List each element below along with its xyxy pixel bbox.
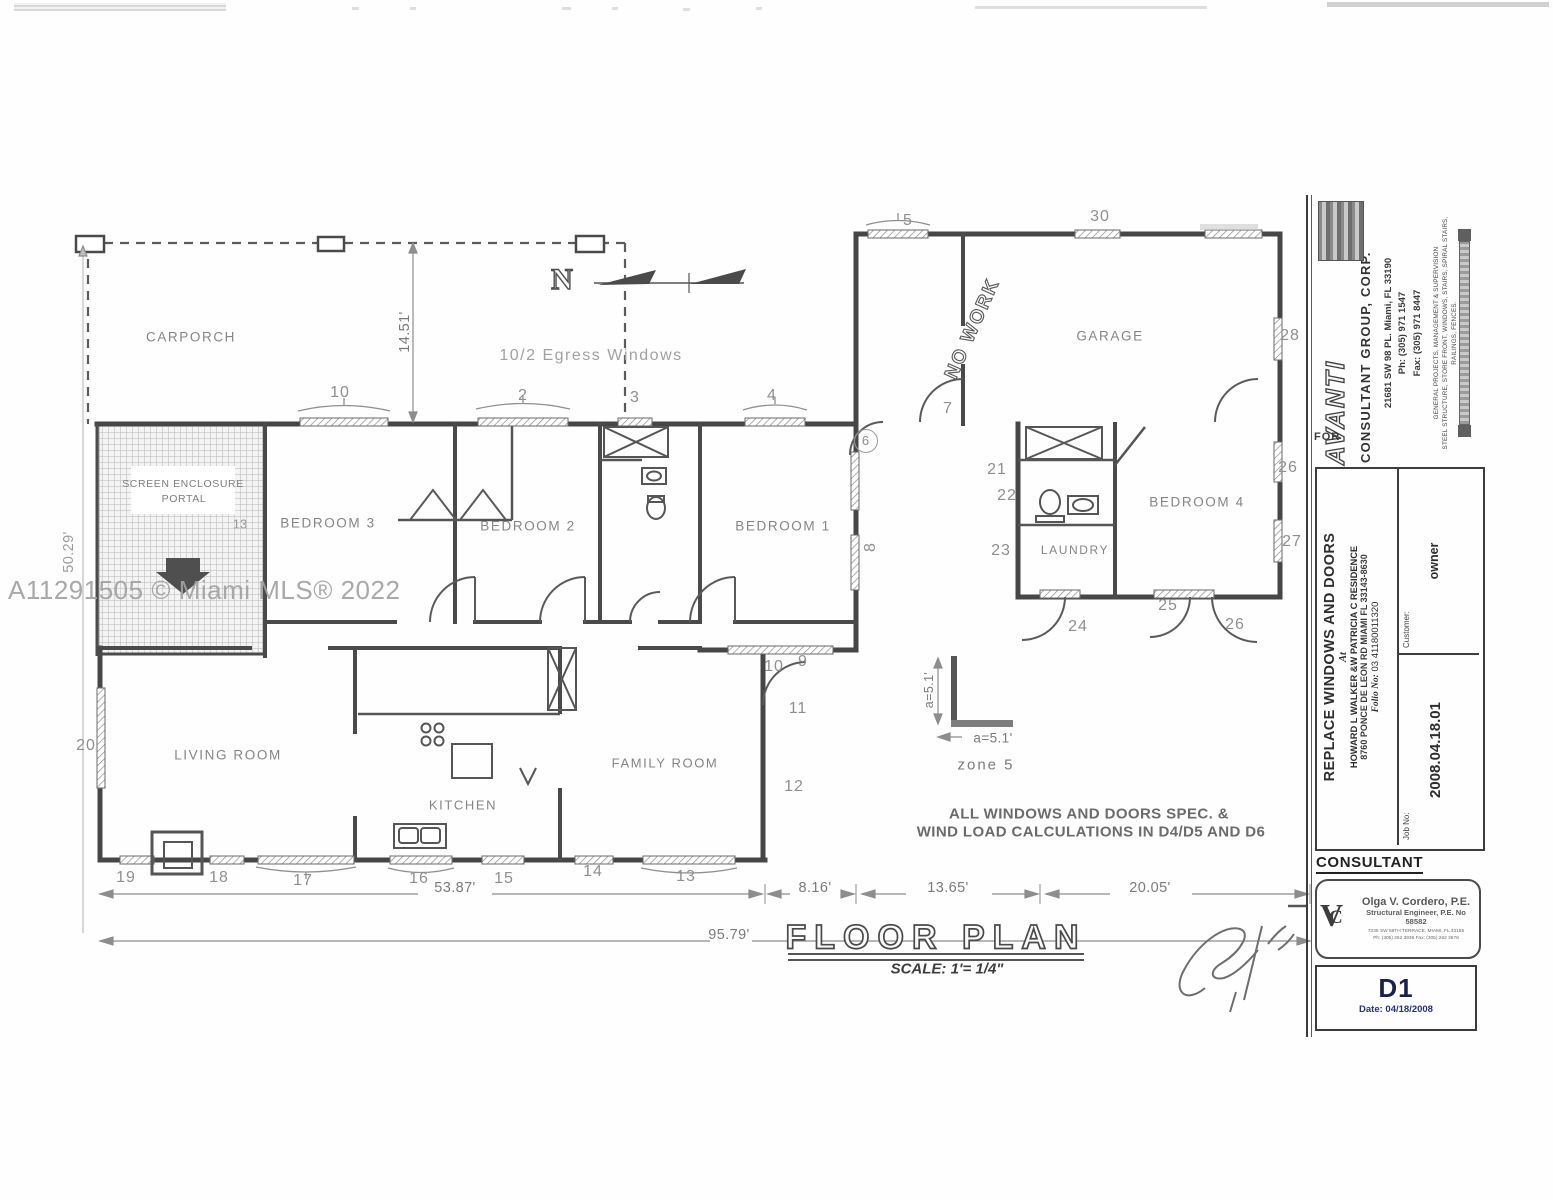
dimension-carporch-depth: 14.51' — [397, 311, 413, 352]
project-title: REPLACE WINDOWS AND DOORS — [1322, 469, 1338, 845]
title-block-border — [1306, 195, 1308, 1037]
title-block-border — [1311, 195, 1312, 1037]
job-number: 2008.04.18.01 — [1427, 655, 1444, 845]
sheet-scale: SCALE: 1'= 1/4" — [891, 961, 1004, 978]
room-label-bedroom4: BEDROOM 4 — [1149, 495, 1244, 510]
for-label: FOR — [1314, 431, 1340, 443]
owner-address: 8760 PONCE DE LEON RD MIAMI FL 33143-863… — [1359, 469, 1369, 845]
window-marker: 10 — [764, 658, 784, 676]
room-label-living: LIVING ROOM — [174, 748, 282, 763]
scan-artifact — [1200, 224, 1258, 230]
dimension-seg3: 20.05' — [1129, 880, 1170, 896]
room-label-bedroom2: BEDROOM 2 — [480, 519, 575, 534]
window-marker: 5 — [903, 212, 913, 230]
sheet-title: FLOOR PLAN — [786, 919, 1087, 958]
door-marker: 26 — [1225, 616, 1245, 634]
window-marker: 2 — [518, 387, 528, 405]
firm-address: 21681 SW 98 PL. Miami, FL 33190 Ph: (305… — [1382, 233, 1425, 433]
window-marker: 12 — [784, 778, 804, 796]
consultant-stamp: V C Olga V. Cordero, P.E. Structural Eng… — [1315, 879, 1481, 959]
firm-services-line2: STEEL STRUCTURE, STORE FRONT, WINDOWS, S… — [1441, 207, 1459, 459]
monogram-c: C — [1329, 907, 1343, 929]
window-marker: 16 — [409, 870, 429, 888]
mls-watermark: A11291505 © Miami MLS® 2022 — [8, 575, 400, 606]
north-label: N — [551, 263, 573, 297]
window-marker: 20 — [76, 737, 96, 755]
spec-note-line1: ALL WINDOWS AND DOORS SPEC. & — [949, 806, 1229, 823]
window-marker: 28 — [1280, 327, 1300, 345]
window-marker: 26 — [1278, 459, 1298, 477]
firm-fax: Fax: (305) 971 8447 — [1411, 233, 1425, 433]
firm-address-line: 21681 SW 98 PL. Miami, FL 33190 — [1382, 233, 1396, 433]
firm-name: CONSULTANT GROUP, CORP. — [1358, 251, 1373, 463]
dimension-left-height: 50.29' — [61, 531, 77, 572]
window-marker: 9 — [798, 653, 808, 671]
room-label-family: FAMILY ROOM — [612, 756, 719, 771]
room-label-kitchen: KITCHEN — [429, 798, 497, 813]
firm-services-line1: GENERAL PROJECTS, MANAGEMENT & SUPERVISI… — [1432, 207, 1441, 459]
door-marker: 6 — [854, 429, 878, 453]
zone-a-vertical: a=5.1' — [922, 672, 936, 708]
title-block: AVANTI CONSULTANT GROUP, CORP. 21681 SW … — [1306, 195, 1482, 1037]
dimension-total-width: 95.79' — [708, 927, 749, 943]
zone-a-horizontal: a=5.1' — [973, 731, 1012, 746]
window-marker: 13 — [676, 868, 696, 886]
window-marker: 30 — [1090, 208, 1110, 226]
room-label-portal: PORTAL — [162, 493, 207, 505]
window-marker: 3 — [630, 389, 640, 407]
job-label: Job No: — [1402, 812, 1411, 840]
room-label-bedroom1: BEDROOM 1 — [735, 519, 830, 534]
customer-label: Customer: — [1402, 611, 1411, 648]
firm-services: GENERAL PROJECTS, MANAGEMENT & SUPERVISI… — [1432, 207, 1459, 459]
window-marker: 4 — [767, 387, 777, 405]
vc-monogram-icon: V C — [1319, 897, 1355, 941]
window-marker: 21 — [987, 461, 1007, 479]
project-info: REPLACE WINDOWS AND DOORS At HOWARD L WA… — [1317, 469, 1399, 845]
floor-plan-sheet: A11291505 © Miami MLS® 2022 N 10/2 Egres… — [0, 0, 1553, 1200]
zone5-symbol — [951, 656, 1013, 727]
avanti-logo: AVANTI — [1320, 360, 1351, 465]
window-marker: 14 — [583, 863, 603, 881]
window-braces — [256, 213, 930, 879]
folio-line: Folio No: 03 41180011320 — [1370, 469, 1381, 845]
window-marker: 22 — [997, 487, 1017, 505]
firm-phone: Ph: (305) 971 1547 — [1396, 233, 1410, 433]
job-cell: Job No: 2008.04.18.01 — [1399, 653, 1479, 845]
room-label-garage: GARAGE — [1076, 329, 1143, 344]
project-block: REPLACE WINDOWS AND DOORS At HOWARD L WA… — [1315, 467, 1485, 851]
owner-name: HOWARD L WALKER &W PATRICIA C RESIDENCE — [1349, 469, 1359, 845]
room-label-carporch: CARPORCH — [146, 330, 236, 345]
folio-label: Folio No: — [1371, 674, 1381, 712]
dimension-seg2: 13.65' — [927, 880, 968, 896]
window-marker: 13 — [233, 517, 247, 532]
sheet-number-block: D1 Date: 04/18/2008 — [1315, 965, 1477, 1031]
spec-note-line2: WIND LOAD CALCULATIONS IN D4/D5 AND D6 — [917, 824, 1266, 841]
north-arrow — [594, 269, 746, 293]
sheet-number: D1 — [1317, 973, 1475, 1004]
room-label-bedroom3: BEDROOM 3 — [280, 516, 375, 531]
door-marker: 25 — [1158, 597, 1178, 615]
dimension-seg1: 8.16' — [799, 880, 832, 896]
door-marker: 11 — [789, 700, 808, 718]
consultant-address: 7235 SW 58TH TERRACE, MIAMI, FL 33155 — [1355, 929, 1477, 935]
door-marker: 24 — [1068, 618, 1088, 636]
window-marker: 10 — [330, 384, 350, 402]
window-marker: 17 — [293, 872, 313, 890]
window-marker: 23 — [991, 542, 1011, 560]
window-marker: 15 — [494, 870, 514, 888]
window-marker: 8 — [862, 542, 880, 552]
dimension-main-width: 53.87' — [434, 880, 475, 896]
screen-enclosure-mesh — [99, 426, 263, 654]
window-marker: 18 — [209, 869, 229, 887]
signature — [1180, 926, 1294, 1012]
customer-value: owner — [1427, 469, 1441, 653]
window-marker: 27 — [1282, 533, 1302, 551]
door-arcs — [410, 379, 1258, 705]
window-marker: 19 — [116, 869, 136, 887]
firm-photo — [1318, 201, 1364, 261]
project-at: At — [1338, 469, 1349, 845]
customer-cell: Customer: owner — [1399, 469, 1479, 653]
folio-value: 03 41180011320 — [1370, 602, 1381, 672]
consultant-phone: Ph: (305) 262 3936 Fax: (305) 262 3678 — [1355, 936, 1477, 942]
egress-note: 10/2 Egress Windows — [499, 347, 682, 365]
firm-block: AVANTI CONSULTANT GROUP, CORP. 21681 SW … — [1316, 199, 1480, 467]
room-label-laundry: LAUNDRY — [1041, 543, 1109, 557]
column-graphic — [1458, 229, 1471, 437]
door-marker: 7 — [943, 400, 953, 418]
consultant-heading: CONSULTANT — [1316, 854, 1423, 874]
consultant-title: Structural Engineer, P.E. No 58582 — [1355, 909, 1477, 926]
sheet-date: Date: 04/18/2008 — [1317, 1004, 1475, 1015]
zone-label: zone 5 — [957, 757, 1014, 774]
room-label-screen-enclosure: SCREEN ENCLOSURE — [122, 478, 244, 490]
